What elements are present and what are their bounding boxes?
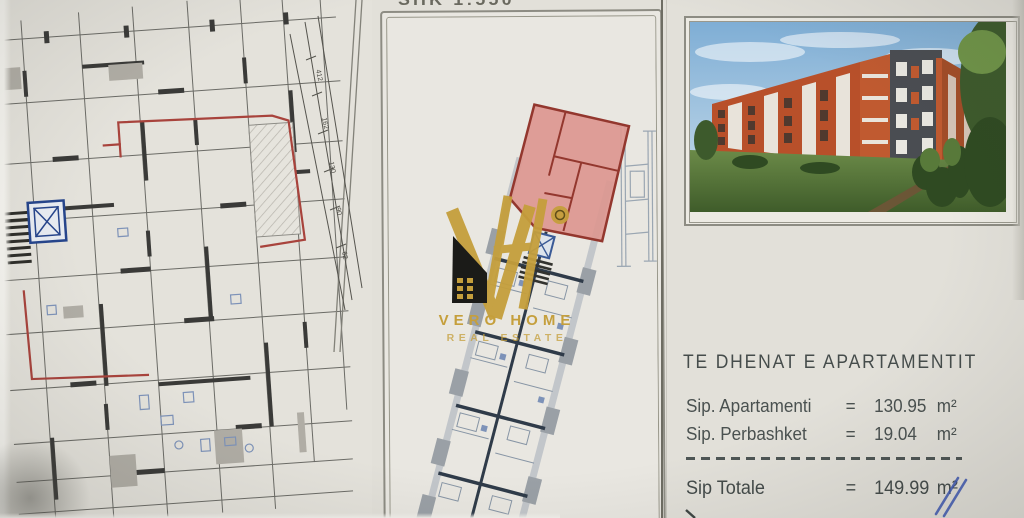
apartment-area-row: Sip. Apartamenti = 130.95 m² [686, 396, 962, 417]
row-value: 130.95 [874, 396, 937, 417]
row-label: Sip Totale [686, 478, 846, 500]
site-plan-panel [380, 9, 666, 518]
total-area-row: Sip Totale = 149.99 m² [686, 478, 962, 500]
elevator-symbol [28, 200, 67, 242]
page-edge-bottom [0, 513, 560, 518]
row-unit: m² [937, 396, 957, 417]
row-value: 149.99 [874, 478, 937, 500]
row-unit: m² [937, 478, 958, 500]
common-area-row: Sip. Perbashket = 19.04 m² [686, 424, 962, 445]
page-fold-highlight [666, 0, 667, 518]
row-equals: = [846, 478, 875, 500]
plan-scale-label: SHK 1:550 [398, 0, 515, 10]
row-unit: m² [937, 424, 957, 445]
row-value: 19.04 [874, 424, 937, 445]
pen-tick-icon [686, 510, 695, 518]
core-elevator-symbol [529, 232, 555, 259]
row-label: Sip. Perbashket [686, 424, 846, 445]
page-shadow [0, 438, 90, 518]
scanned-brochure-photo: 412 162 130 90 62 SHK 1:550 [0, 0, 1024, 518]
site-floor-plan [387, 16, 660, 518]
row-equals: = [846, 424, 875, 445]
row-label: Sip. Apartamenti [686, 396, 846, 417]
building-render-image [690, 22, 1006, 212]
building-render-frame [684, 16, 1020, 226]
row-equals: = [846, 396, 875, 417]
dashed-separator [686, 457, 962, 460]
apartment-data-title: TE DHENAT E APARTAMENTIT [683, 352, 977, 374]
page-edge-right [1012, 0, 1024, 300]
page-fold-divider [661, 0, 663, 518]
